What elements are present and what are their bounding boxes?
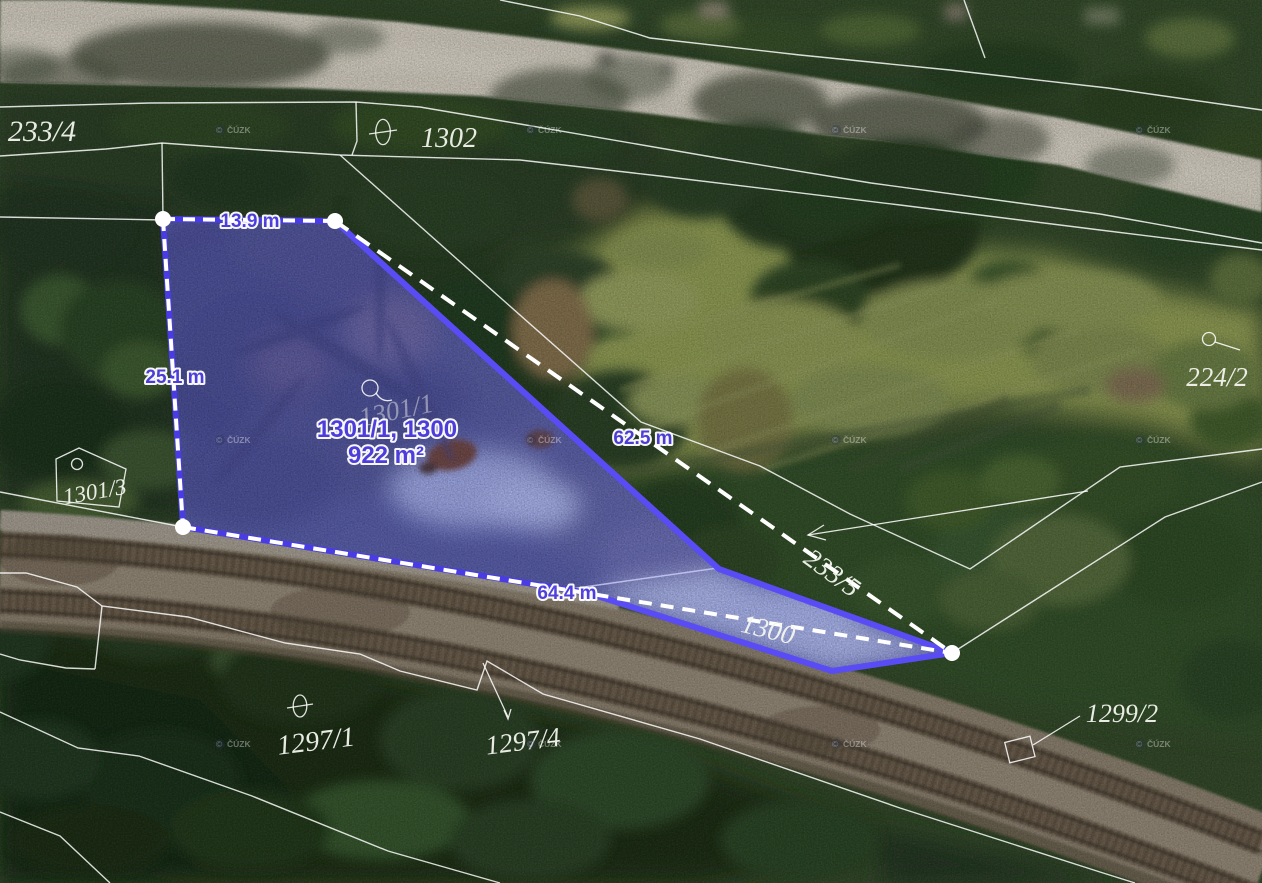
svg-text:ČÚZK: ČÚZK xyxy=(843,434,867,445)
svg-text:©: © xyxy=(832,125,839,135)
svg-text:62.5 m: 62.5 m xyxy=(613,428,672,449)
svg-text:233/4: 233/4 xyxy=(8,115,76,148)
svg-text:©: © xyxy=(1136,739,1143,749)
svg-text:©: © xyxy=(1136,125,1143,135)
svg-text:ČÚZK: ČÚZK xyxy=(227,434,251,445)
svg-text:©: © xyxy=(527,739,534,749)
svg-text:ČÚZK: ČÚZK xyxy=(1147,124,1171,135)
svg-text:©: © xyxy=(216,125,223,135)
svg-text:224/2: 224/2 xyxy=(1186,362,1248,392)
svg-text:ČÚZK: ČÚZK xyxy=(843,124,867,135)
svg-text:©: © xyxy=(216,739,223,749)
svg-text:922 m²: 922 m² xyxy=(348,442,424,469)
svg-text:ČÚZK: ČÚZK xyxy=(227,738,251,749)
svg-text:©: © xyxy=(527,125,534,135)
svg-text:©: © xyxy=(832,435,839,445)
svg-text:ČÚZK: ČÚZK xyxy=(843,738,867,749)
svg-text:1299/2: 1299/2 xyxy=(1086,699,1158,728)
svg-text:ČÚZK: ČÚZK xyxy=(227,124,251,135)
svg-text:ČÚZK: ČÚZK xyxy=(1147,738,1171,749)
svg-text:13.9 m: 13.9 m xyxy=(220,211,279,232)
svg-text:ČÚZK: ČÚZK xyxy=(538,124,562,135)
svg-text:©: © xyxy=(1136,435,1143,445)
svg-text:©: © xyxy=(216,435,223,445)
svg-text:ČÚZK: ČÚZK xyxy=(1147,434,1171,445)
svg-text:©: © xyxy=(832,739,839,749)
svg-text:25.1 m: 25.1 m xyxy=(145,367,204,388)
svg-text:64.4 m: 64.4 m xyxy=(537,583,596,604)
svg-text:1301/1, 1300: 1301/1, 1300 xyxy=(317,416,457,443)
svg-text:ČÚZK: ČÚZK xyxy=(538,434,562,445)
svg-text:ČÚZK: ČÚZK xyxy=(538,738,562,749)
svg-text:©: © xyxy=(527,435,534,445)
svg-text:1302: 1302 xyxy=(421,123,477,154)
